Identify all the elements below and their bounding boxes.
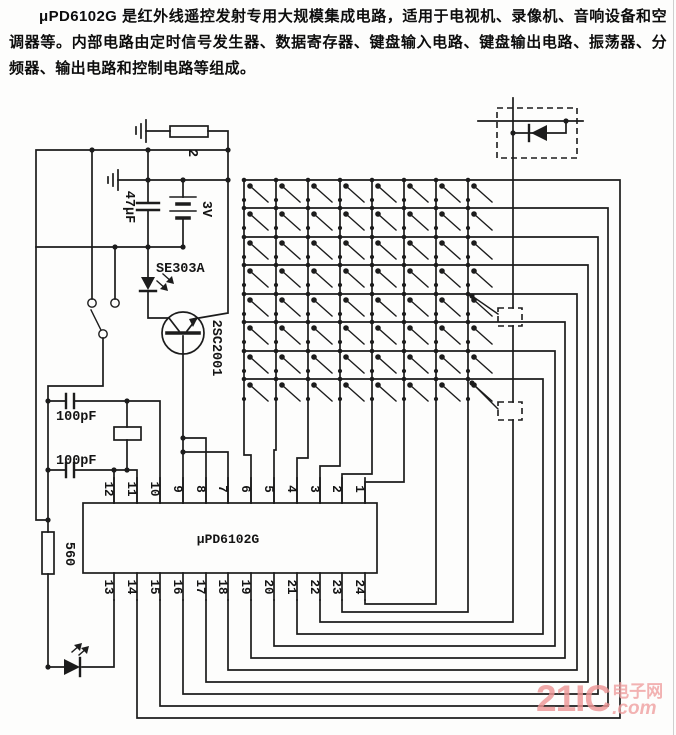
pin-label-bottom: 15 xyxy=(147,579,161,594)
slide-switch-icon xyxy=(88,299,119,338)
pin-label-top: 9 xyxy=(170,485,184,493)
pin-label-bottom: 16 xyxy=(170,579,184,594)
se303a-label: SE303A xyxy=(156,262,206,277)
ir-led-output-icon xyxy=(64,643,89,676)
pin-label-bottom: 19 xyxy=(238,579,252,594)
routing-wires xyxy=(137,180,620,718)
capacitor-100pf-b-label: 100pF xyxy=(56,454,97,469)
pin-label-top: 5 xyxy=(261,485,275,493)
pin-label-bottom: 21 xyxy=(284,579,298,594)
capacitor-47uf-label: 47μF xyxy=(121,191,136,223)
transistor-label: 2SC2001 xyxy=(208,320,223,377)
output-led-section xyxy=(42,532,114,676)
pin-label-bottom: 20 xyxy=(261,579,275,594)
battery-3v-label: 3V xyxy=(198,201,213,218)
pin-label-top: 10 xyxy=(147,481,161,496)
pin-label-bottom: 17 xyxy=(193,579,207,594)
ground-icon xyxy=(136,120,146,142)
pin-label-bottom: 14 xyxy=(124,579,138,595)
pin-label-top: 4 xyxy=(284,485,298,493)
pin-label-top: 11 xyxy=(124,481,138,496)
pin-label-bottom: 18 xyxy=(215,579,229,594)
pin-label-bottom: 24 xyxy=(352,579,366,595)
pin-label-top: 1 xyxy=(352,485,366,493)
pin-label-bottom: 23 xyxy=(329,579,343,594)
crystal-icon xyxy=(114,427,141,440)
capacitor-100pf-a-label: 100pF xyxy=(56,410,97,425)
pin-label-top: 8 xyxy=(193,485,207,493)
pin-label-top: 7 xyxy=(215,485,229,493)
resistor-560-label: 560 xyxy=(61,542,76,566)
pin-label-top: 12 xyxy=(101,481,115,496)
resistor-2-label: 2 xyxy=(184,149,199,157)
dashed-switch-box xyxy=(498,402,522,420)
pin-label-top: 6 xyxy=(238,485,252,493)
capacitor-100pf-a-icon xyxy=(66,394,74,408)
resistor-560-icon xyxy=(42,532,54,574)
scan-edge-artifact xyxy=(673,0,674,735)
scanned-page: μPD6102G 是红外线遥控发射专用大规模集成电路，适用于电视机、录像机、音响… xyxy=(0,0,676,735)
ic-label: μPD6102G xyxy=(197,532,260,547)
pin-label-bottom: 13 xyxy=(101,579,115,594)
battery-icon xyxy=(170,197,196,218)
pin-label-bottom: 22 xyxy=(307,579,321,594)
capacitor-47uf-icon xyxy=(137,203,159,210)
pin-label-top: 2 xyxy=(329,485,343,493)
ground-icon xyxy=(108,170,118,190)
diode-icon xyxy=(529,125,547,141)
resistor-2 xyxy=(170,126,208,137)
schematic-diagram: 121110987654321131415161718192021222324 … xyxy=(0,0,676,735)
dashed-switch-box xyxy=(498,308,522,326)
pin-label-top: 3 xyxy=(307,485,321,493)
